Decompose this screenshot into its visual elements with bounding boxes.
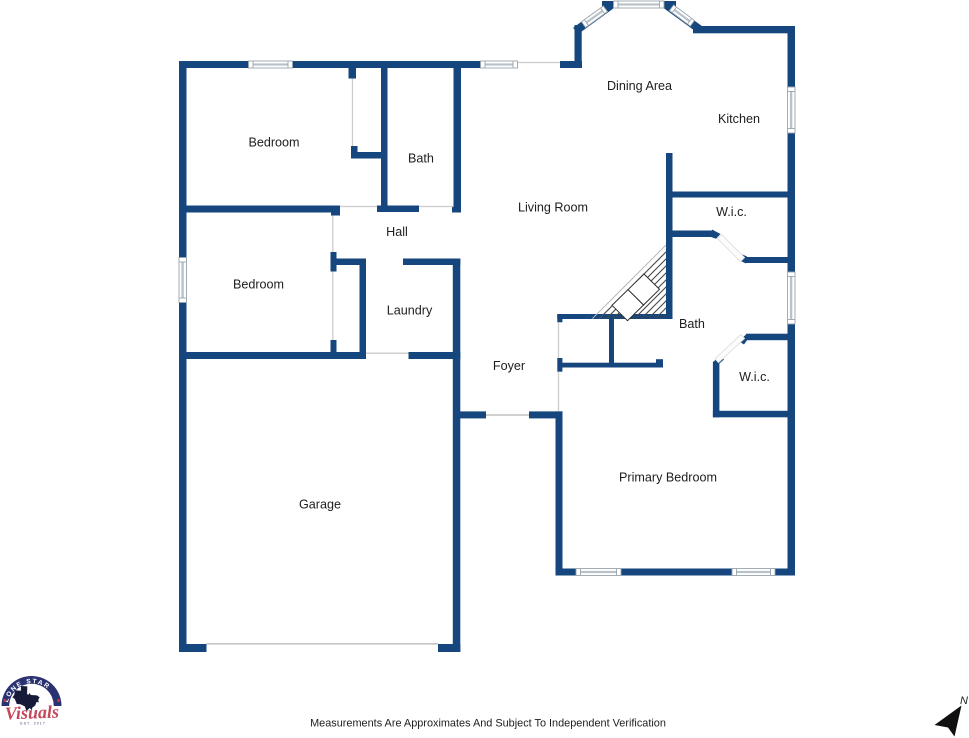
svg-text:Bath: Bath: [679, 317, 705, 331]
svg-text:Bedroom: Bedroom: [233, 278, 284, 292]
svg-text:Foyer: Foyer: [493, 359, 525, 373]
svg-text:EST. 2017: EST. 2017: [20, 722, 46, 726]
svg-text:Bedroom: Bedroom: [248, 136, 299, 150]
svg-text:W.i.c.: W.i.c.: [716, 205, 747, 219]
svg-text:Garage: Garage: [299, 498, 341, 512]
svg-text:Kitchen: Kitchen: [718, 112, 760, 126]
svg-text:Visuals: Visuals: [5, 702, 60, 724]
svg-text:Primary Bedroom: Primary Bedroom: [619, 471, 717, 485]
svg-text:Bath: Bath: [408, 152, 434, 166]
svg-text:N: N: [960, 695, 968, 707]
svg-text:Living Room: Living Room: [518, 201, 588, 215]
svg-text:Dining Area: Dining Area: [607, 79, 672, 93]
svg-text:Laundry: Laundry: [387, 304, 433, 318]
svg-text:W.i.c.: W.i.c.: [739, 370, 770, 384]
svg-text:Measurements Are Approximates: Measurements Are Approximates And Subjec…: [310, 718, 666, 730]
svg-text:Hall: Hall: [386, 225, 408, 239]
